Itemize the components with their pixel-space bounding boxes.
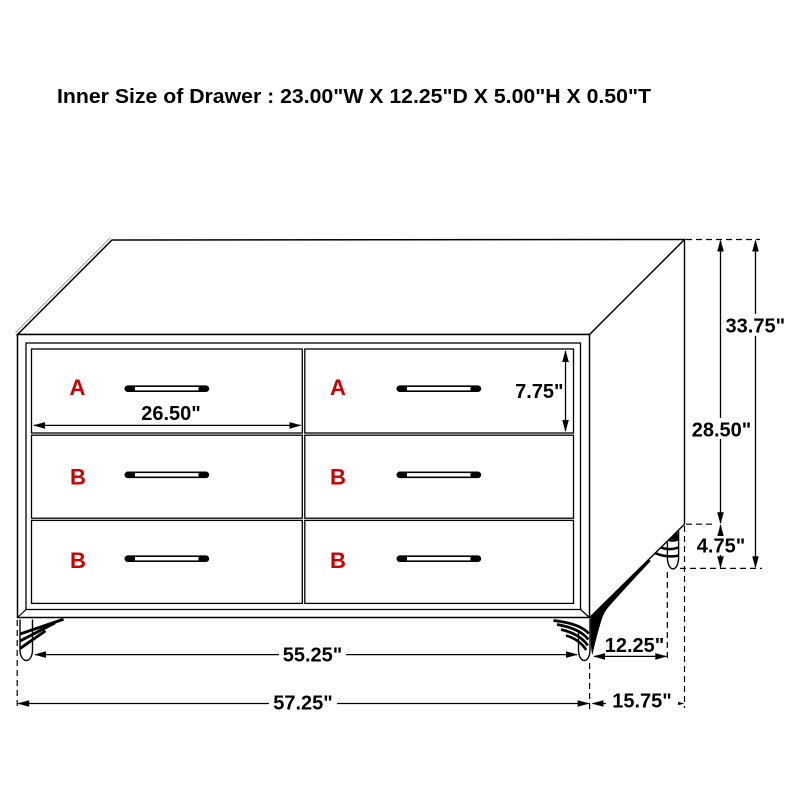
- svg-text:26.50": 26.50": [141, 403, 201, 425]
- svg-text:15.75": 15.75": [612, 691, 672, 713]
- svg-text:12.25": 12.25": [605, 635, 665, 657]
- svg-text:B: B: [330, 548, 346, 573]
- svg-text:A: A: [330, 375, 346, 400]
- svg-text:57.25": 57.25": [273, 693, 333, 715]
- svg-text:B: B: [70, 464, 86, 489]
- svg-text:4.75": 4.75": [697, 536, 745, 558]
- svg-text:A: A: [70, 375, 86, 400]
- svg-text:28.50": 28.50": [692, 420, 752, 442]
- svg-text:33.75": 33.75": [726, 316, 786, 338]
- svg-text:7.75": 7.75": [515, 381, 563, 403]
- svg-text:B: B: [330, 464, 346, 489]
- svg-text:55.25": 55.25": [283, 645, 343, 667]
- svg-text:Inner Size of Drawer : 23.00"W: Inner Size of Drawer : 23.00"W X 12.25"D…: [57, 86, 651, 108]
- svg-text:B: B: [70, 548, 86, 573]
